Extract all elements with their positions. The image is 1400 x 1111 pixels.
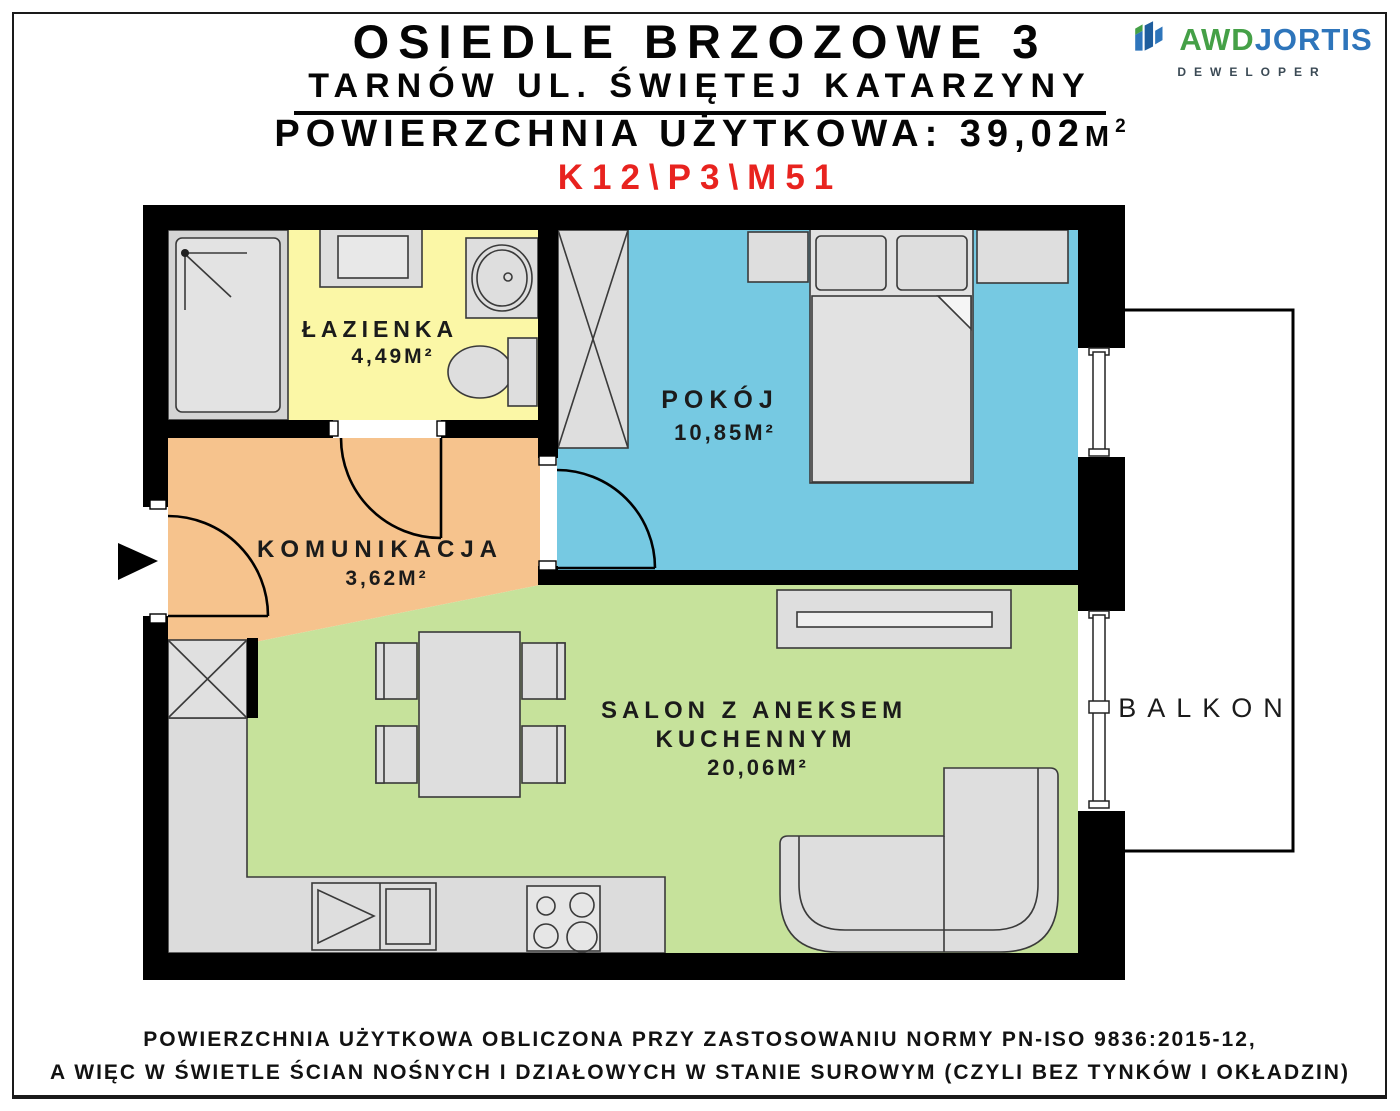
bedroom-area: 10,85M² bbox=[674, 420, 776, 445]
tv-sideboard bbox=[777, 590, 1011, 648]
wardrobe bbox=[558, 230, 628, 448]
wall-left-upper bbox=[143, 205, 168, 507]
living-room-label-line1: SALON Z ANEKSEM bbox=[601, 697, 907, 724]
footer-line1: POWIERZCHNIA UŻYTKOWA OBLICZONA PRZY ZAS… bbox=[0, 1023, 1400, 1056]
bedroom-window bbox=[1089, 348, 1109, 456]
bathroom-area: 4,49M² bbox=[351, 345, 434, 368]
balcony bbox=[1122, 310, 1293, 851]
chair-backrest bbox=[557, 643, 565, 699]
pillow bbox=[897, 236, 967, 290]
chair-backrest bbox=[376, 726, 384, 783]
bathroom-label: ŁAZIENKA bbox=[302, 316, 458, 342]
entrance-arrow-icon bbox=[118, 543, 158, 580]
washing-machine bbox=[320, 228, 422, 287]
kitchen-sink bbox=[312, 883, 436, 950]
living-room-area: 20,06M² bbox=[707, 755, 809, 780]
floorplan-drawing: ŁAZIENKA 4,49M² POKÓJ 10,85M² KOMUNIKACJ… bbox=[0, 0, 1400, 1111]
dresser bbox=[977, 230, 1068, 283]
wall-right-lower bbox=[1078, 811, 1125, 980]
wall-shaft-stub bbox=[247, 638, 258, 718]
wall-bottom bbox=[143, 953, 1125, 980]
washbasin bbox=[466, 238, 538, 318]
nightstand bbox=[748, 232, 808, 282]
wall-bathroom-bottom-left bbox=[168, 420, 333, 438]
wall-right-middle bbox=[1078, 457, 1125, 611]
wall-bathroom-bedroom bbox=[538, 205, 558, 458]
footer-line2: A WIĘC W ŚWIETLE ŚCIAN NOŚNYCH I DZIAŁOW… bbox=[0, 1056, 1400, 1089]
cooktop bbox=[527, 886, 600, 952]
pillow bbox=[816, 236, 886, 290]
living-room-label-line2: KUCHENNYM bbox=[656, 726, 857, 753]
double-bed bbox=[810, 228, 973, 483]
window-transom bbox=[1089, 701, 1109, 713]
wall-bedroom-living bbox=[538, 570, 1078, 585]
hall-label: KOMUNIKACJA bbox=[257, 536, 503, 563]
bedroom-label: POKÓJ bbox=[661, 384, 779, 414]
shaft bbox=[168, 640, 247, 718]
hall-area: 3,62M² bbox=[345, 567, 428, 590]
wall-bathroom-bottom-right bbox=[441, 420, 540, 438]
chair-backrest bbox=[376, 643, 384, 699]
chair-backrest bbox=[557, 726, 565, 783]
shower bbox=[168, 230, 288, 420]
dining-table bbox=[419, 632, 520, 797]
wall-right-upper bbox=[1078, 205, 1125, 348]
floorplan-page: { "header": { "title": "OSIEDLE BRZOZOWE… bbox=[0, 0, 1400, 1111]
living-room-window bbox=[1089, 611, 1109, 808]
footer-note: POWIERZCHNIA UŻYTKOWA OBLICZONA PRZY ZAS… bbox=[0, 1023, 1400, 1089]
balcony-label: BALKON bbox=[1118, 693, 1294, 723]
wall-top bbox=[143, 205, 1125, 230]
wall-left-lower bbox=[143, 616, 168, 980]
